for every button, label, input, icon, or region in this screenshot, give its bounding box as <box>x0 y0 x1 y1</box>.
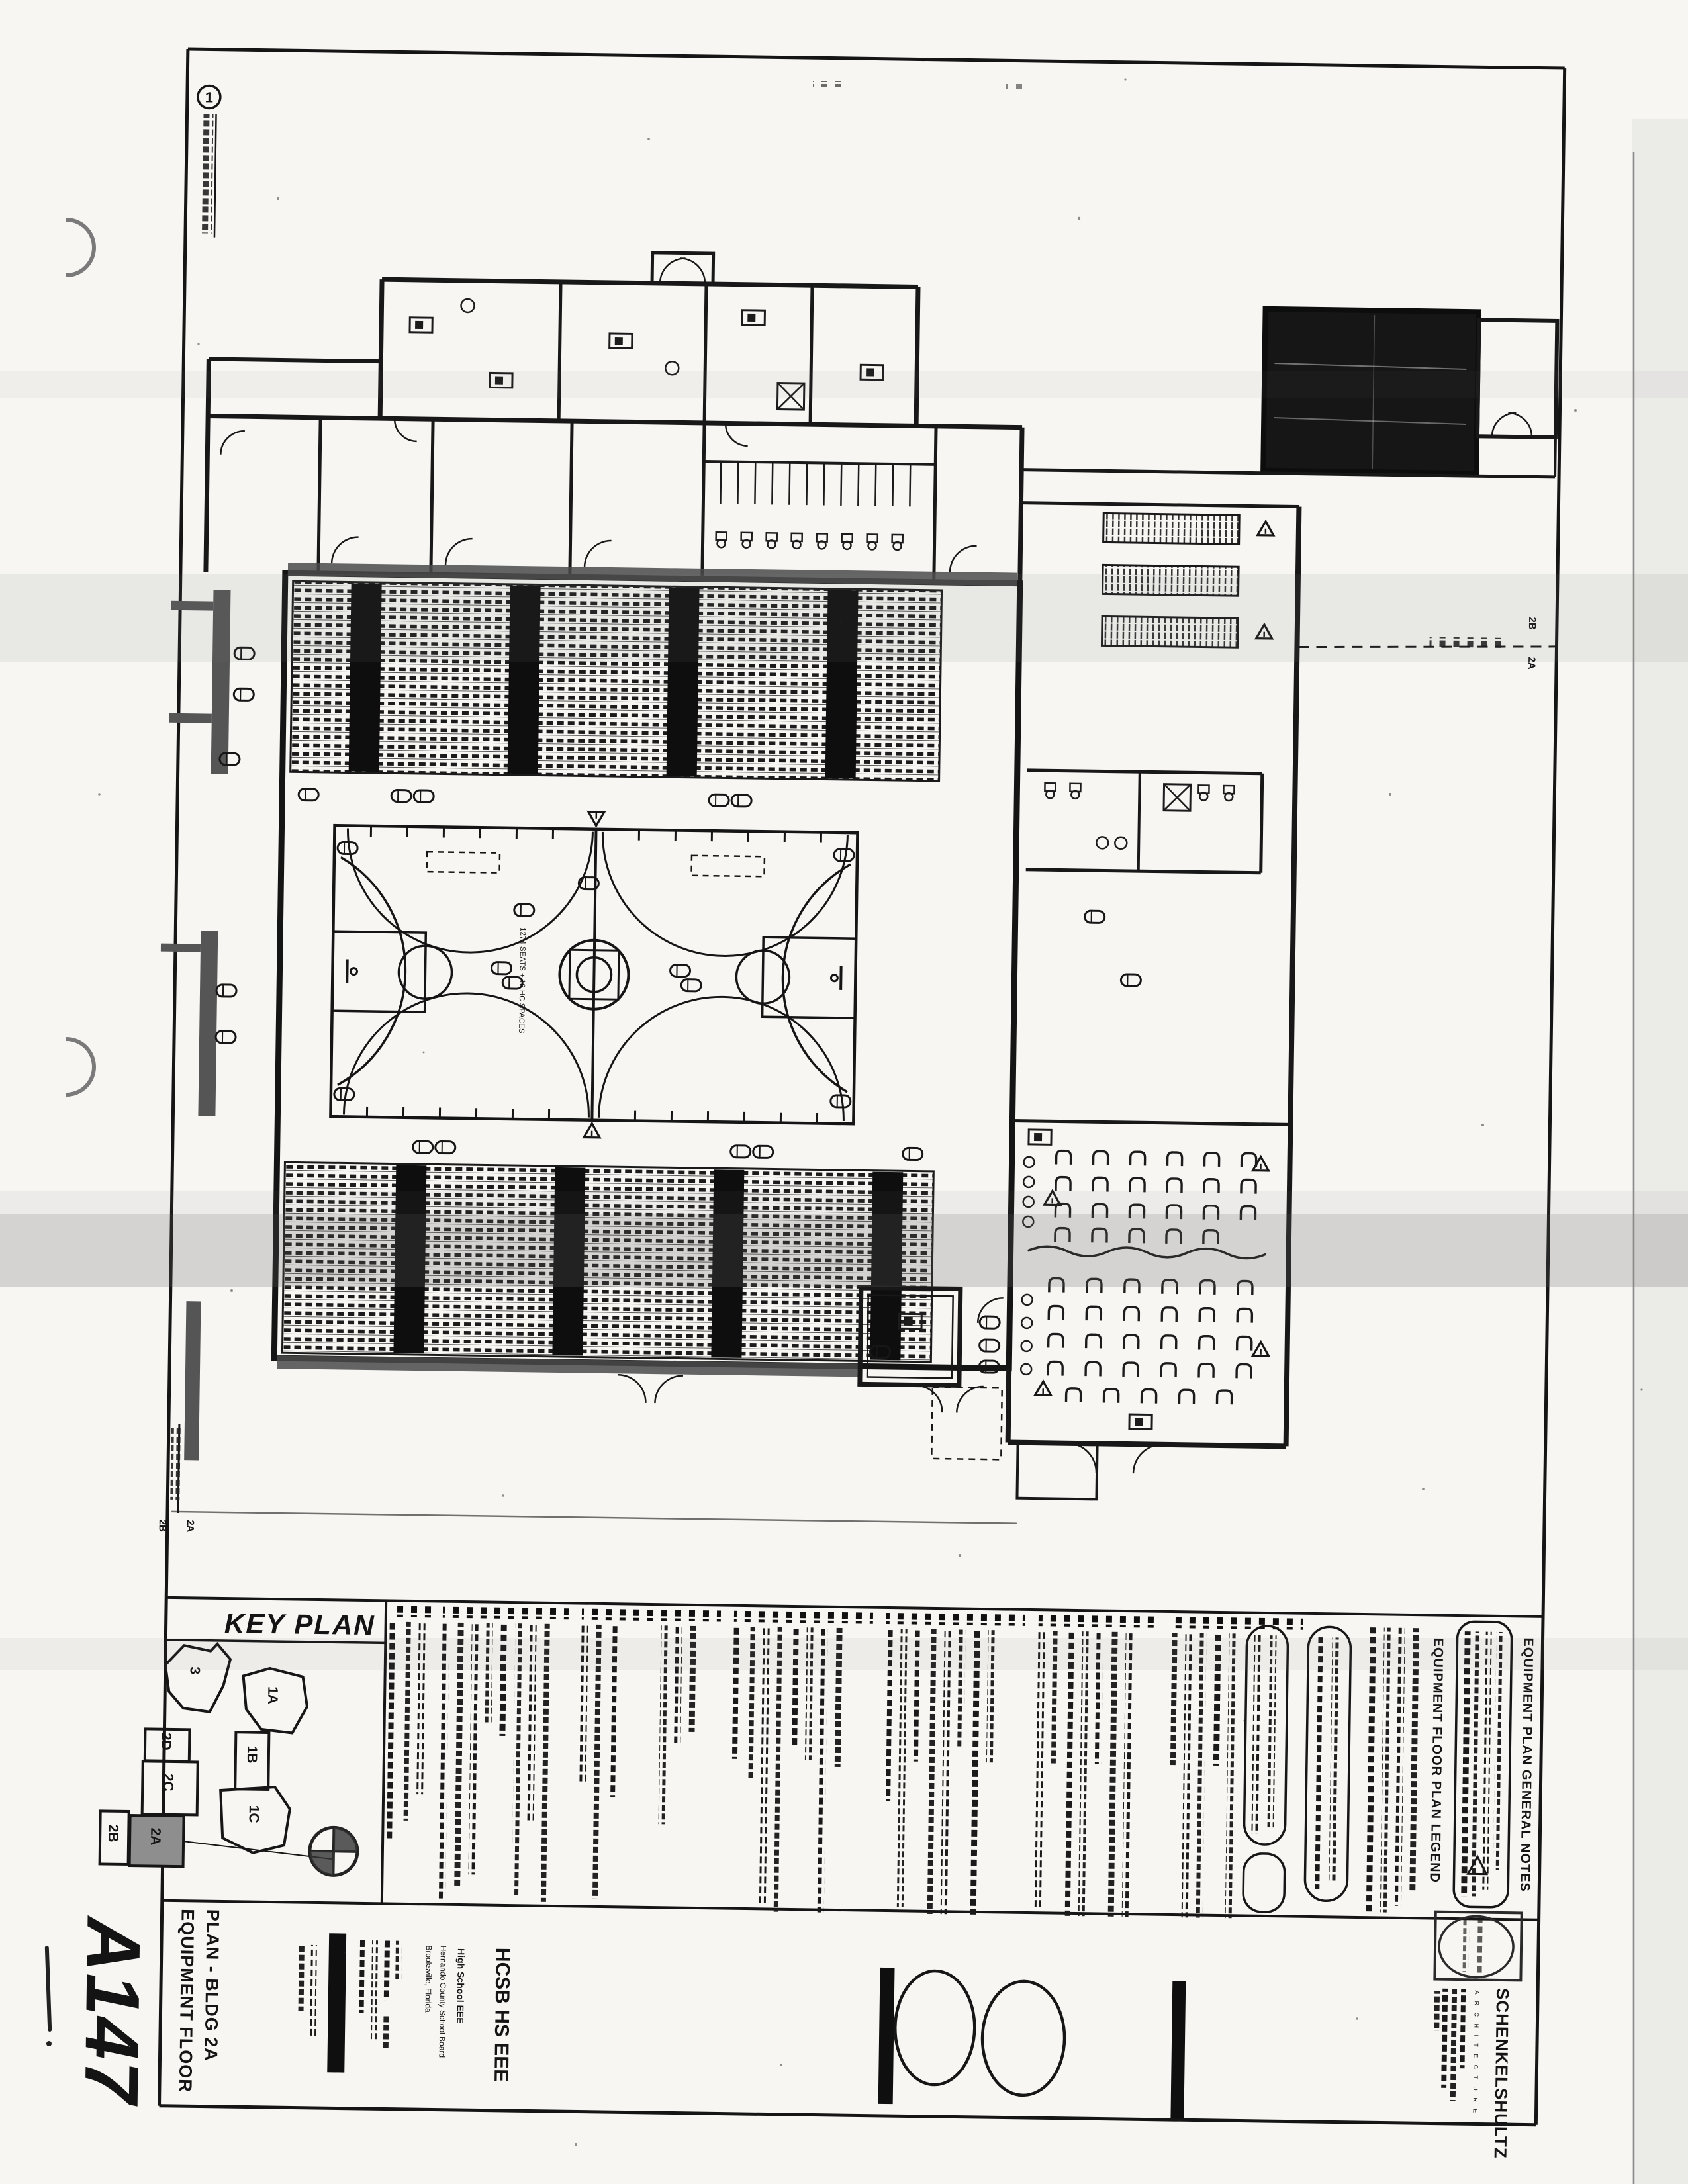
basketball-court <box>330 825 857 1124</box>
kp-label-2A: 2A <box>148 1827 163 1845</box>
sheet-title-line2: PLAN - BLDG 2A <box>201 1909 222 2062</box>
scanned-sheet: 1 <box>0 0 1688 2184</box>
matchline-sw-side-a: 2A <box>185 1520 196 1533</box>
revision-circle-1 <box>894 1970 975 2085</box>
title-block: A147 EQUIPMENT FLOOR PLAN - BLDG 2A Broo… <box>68 1893 1522 2159</box>
sheet-content: 1 <box>68 48 1565 2159</box>
gym-exits <box>171 1369 1019 1524</box>
architect-firm: SCHENKELSHULTZ <box>1491 1988 1513 2159</box>
title-divider-bar-2 <box>878 1968 895 2104</box>
kp-label-1C: 1C <box>246 1805 261 1823</box>
kp-label-2B: 2B <box>105 1825 120 1843</box>
callout-number: 1 <box>205 89 214 105</box>
corner-stamp-smudge <box>45 1946 52 2032</box>
kp-label-1B: 1B <box>244 1745 259 1763</box>
dark-equipment-room <box>1021 306 1557 510</box>
title-divider-bar-1 <box>327 1933 346 2072</box>
key-plan-title: KEY PLAN <box>224 1608 375 1641</box>
title-divider-bar-3 <box>1170 1981 1186 2118</box>
sheet-title-line1: EQUIPMENT FLOOR <box>175 1909 198 2093</box>
drawing-callout: 1 <box>196 85 220 237</box>
matchline-sw-side-b: 2B <box>157 1520 168 1533</box>
north-arrow-icon <box>309 1827 357 1876</box>
equipment-floor-plan: 1 <box>153 85 1563 1551</box>
architect-discipline: A R C H I T E C T U R E <box>1472 1990 1481 2115</box>
kp-label-1A: 1A <box>265 1686 280 1704</box>
binder-hole <box>66 1039 94 1095</box>
legend-title: EQUIPMENT FLOOR PLAN LEGEND <box>1427 1637 1445 1883</box>
legend-symbols <box>1366 1627 1420 1913</box>
binder-hole <box>66 220 94 275</box>
project-owner: Hernando County School Board <box>438 1946 448 2058</box>
project-city: Brooksville, Florida <box>424 1945 434 2013</box>
music-room-chairs <box>1020 1278 1270 1431</box>
project-code: HCSB HS EEE <box>490 1948 514 2083</box>
upper-rooms <box>206 247 1025 584</box>
architect-seal <box>1434 1912 1521 1981</box>
seating-note: 1274 SEATS + 18 HC SPACES <box>517 927 526 1034</box>
general-notes-title: EQUIPMENT PLAN GENERAL NOTES <box>1517 1637 1535 1892</box>
toilet-room <box>702 461 935 551</box>
kp-label-2C: 2C <box>160 1774 175 1792</box>
sheet-number: A147 <box>68 1915 156 2107</box>
kp-label-2D: 2D <box>158 1733 173 1751</box>
revision-circle-2 <box>982 1981 1065 2096</box>
project-name: High School EEE <box>455 1948 467 2024</box>
